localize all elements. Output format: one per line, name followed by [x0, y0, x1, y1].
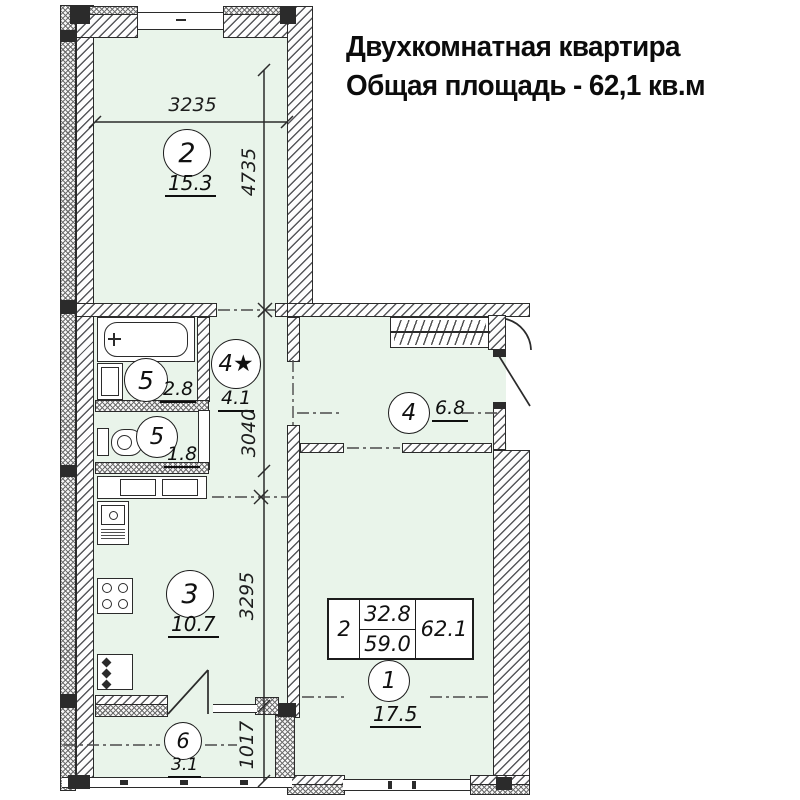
room-1-number: 1 [382, 668, 397, 694]
room-3-area: 10.7 [168, 613, 219, 638]
room-4-corridor-number: 4 [402, 400, 417, 426]
room-2-area: 15.3 [165, 172, 216, 197]
entrance-door-swing [499, 319, 531, 406]
area-table-rooms-count: 2 [329, 600, 360, 658]
room-2-number: 2 [178, 138, 195, 169]
dim-hall-height: 3040 [238, 403, 264, 463]
plan-title-line2: Общая площадь - 62,1 кв.м [346, 67, 705, 106]
area-stamp-table: 2 32.8 59.0 62.1 [327, 598, 474, 660]
plan-title-line1: Двухкомнатная квартира [346, 28, 705, 67]
room-5-wc-area: 1.8 [164, 444, 200, 468]
room-6-area: 3.1 [168, 756, 201, 778]
dim-room2-height: 4735 [238, 142, 264, 202]
room-5-wc-number: 5 [150, 424, 165, 450]
room-4-hall-number: 4★ [218, 351, 253, 377]
balcony-door-swing [168, 670, 208, 714]
dim-balcony-height: 1017 [236, 715, 262, 775]
room-1-number-badge: 1 [368, 660, 410, 702]
room-6-number: 6 [176, 729, 189, 753]
room-2-number-badge: 2 [163, 129, 211, 177]
area-table-reduced-area: 59.0 [360, 630, 415, 659]
room-4-hall-number-badge: 4★ [211, 339, 261, 389]
room-4-corridor-number-badge: 4 [388, 392, 430, 434]
area-table-living-area: 32.8 [360, 600, 415, 630]
plan-title: Двухкомнатная квартира Общая площадь - 6… [346, 28, 705, 106]
room-4-corridor-area: 6.8 [432, 398, 468, 422]
room-1-area: 17.5 [370, 703, 421, 728]
room-3-number-badge: 3 [166, 570, 214, 618]
dim-room2-width: 3235 [150, 94, 235, 116]
room-5-bath-number: 5 [138, 366, 154, 395]
area-table-total-area: 62.1 [416, 600, 472, 658]
room-5-bath-area: 2.8 [160, 379, 196, 403]
dim-kitchen-height: 3295 [236, 566, 262, 626]
room-3-number: 3 [181, 579, 198, 610]
